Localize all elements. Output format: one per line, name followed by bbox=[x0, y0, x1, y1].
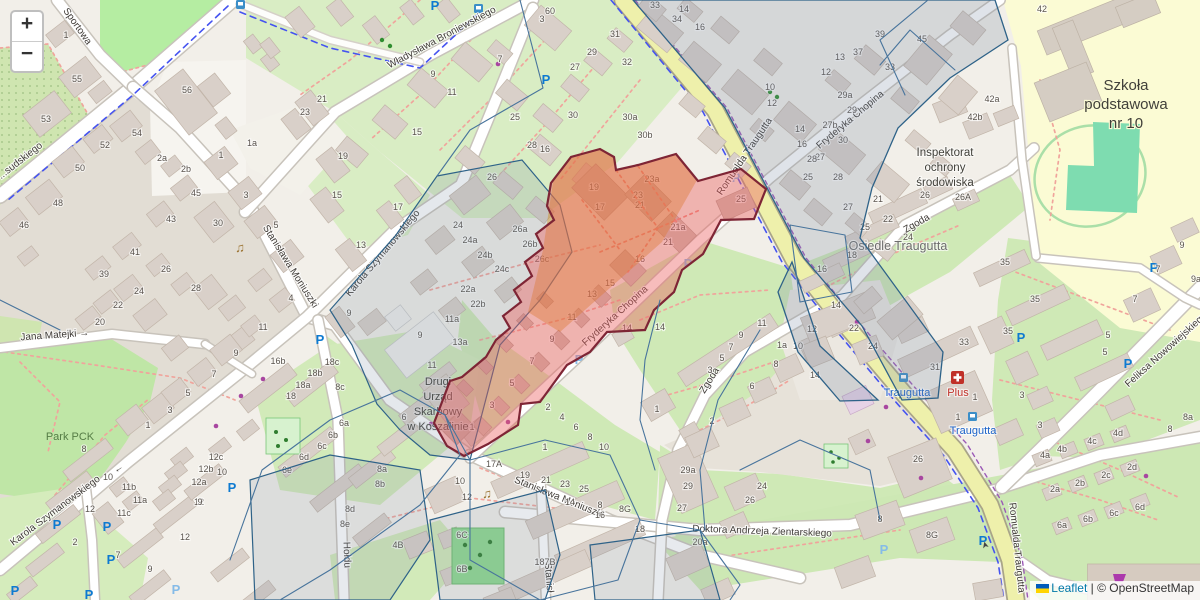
svg-text:11: 11 bbox=[258, 322, 267, 332]
svg-text:6: 6 bbox=[749, 381, 754, 391]
svg-text:P: P bbox=[172, 582, 181, 597]
svg-text:29: 29 bbox=[683, 481, 693, 491]
svg-text:10: 10 bbox=[455, 476, 465, 486]
svg-text:7: 7 bbox=[211, 369, 216, 379]
svg-text:11b: 11b bbox=[122, 482, 136, 492]
svg-text:1: 1 bbox=[972, 392, 977, 402]
svg-text:30b: 30b bbox=[637, 130, 652, 140]
svg-text:8: 8 bbox=[773, 359, 778, 369]
svg-text:Plus: Plus bbox=[947, 387, 969, 399]
svg-text:8c: 8c bbox=[335, 382, 345, 392]
svg-text:48: 48 bbox=[53, 198, 63, 208]
svg-text:35: 35 bbox=[1030, 294, 1040, 304]
svg-text:19: 19 bbox=[338, 151, 348, 161]
svg-text:P: P bbox=[1124, 356, 1133, 371]
svg-text:P: P bbox=[53, 517, 62, 532]
svg-text:4d: 4d bbox=[1113, 428, 1123, 438]
svg-text:ochrony: ochrony bbox=[925, 162, 966, 174]
svg-text:6: 6 bbox=[573, 422, 578, 432]
svg-text:18c: 18c bbox=[325, 357, 340, 367]
svg-text:16: 16 bbox=[595, 510, 605, 520]
svg-text:Traugutta: Traugutta bbox=[950, 425, 998, 437]
svg-text:13: 13 bbox=[356, 240, 366, 250]
svg-text:35: 35 bbox=[1000, 257, 1010, 267]
svg-text:18b: 18b bbox=[307, 368, 322, 378]
svg-text:Szkoła: Szkoła bbox=[1103, 77, 1149, 94]
svg-text:29: 29 bbox=[587, 47, 597, 57]
svg-text:1a: 1a bbox=[247, 138, 257, 148]
svg-text:42b: 42b bbox=[967, 112, 982, 122]
svg-text:4a: 4a bbox=[1040, 450, 1050, 460]
svg-text:10: 10 bbox=[103, 472, 113, 482]
svg-text:6c: 6c bbox=[317, 441, 327, 451]
svg-text:17: 17 bbox=[393, 202, 403, 212]
svg-text:43: 43 bbox=[166, 214, 176, 224]
svg-text:19: 19 bbox=[520, 470, 530, 480]
svg-text:22: 22 bbox=[113, 300, 123, 310]
svg-text:Inspektorat: Inspektorat bbox=[917, 147, 975, 159]
svg-text:54: 54 bbox=[132, 128, 142, 138]
svg-text:23: 23 bbox=[560, 479, 570, 489]
svg-text:5: 5 bbox=[273, 220, 278, 230]
svg-text:29a: 29a bbox=[680, 465, 695, 475]
svg-text:1: 1 bbox=[63, 30, 68, 40]
svg-text:30a: 30a bbox=[622, 112, 637, 122]
svg-text:11: 11 bbox=[757, 318, 766, 328]
svg-text:6a: 6a bbox=[1057, 520, 1067, 530]
svg-text:3: 3 bbox=[707, 365, 712, 375]
svg-text:1: 1 bbox=[542, 442, 547, 452]
svg-text:7: 7 bbox=[1155, 264, 1160, 274]
svg-text:12: 12 bbox=[85, 504, 95, 514]
svg-text:11a: 11a bbox=[133, 495, 147, 505]
svg-text:11: 11 bbox=[447, 87, 456, 97]
svg-text:18a: 18a bbox=[295, 380, 310, 390]
svg-text:45: 45 bbox=[191, 188, 201, 198]
svg-text:6c: 6c bbox=[1109, 508, 1119, 518]
svg-text:42a: 42a bbox=[984, 94, 999, 104]
svg-text:♫: ♫ bbox=[235, 240, 245, 255]
svg-text:♫: ♫ bbox=[482, 486, 492, 501]
svg-text:14: 14 bbox=[655, 322, 665, 332]
svg-text:2: 2 bbox=[545, 402, 550, 412]
svg-text:10: 10 bbox=[599, 442, 609, 452]
svg-text:12: 12 bbox=[180, 532, 190, 542]
svg-text:52: 52 bbox=[100, 140, 110, 150]
svg-text:6b: 6b bbox=[1083, 514, 1093, 524]
svg-text:30: 30 bbox=[213, 218, 223, 228]
svg-text:Park PCK: Park PCK bbox=[46, 431, 95, 443]
svg-text:2b: 2b bbox=[1075, 478, 1085, 488]
svg-text:P: P bbox=[11, 583, 20, 598]
svg-text:9a: 9a bbox=[1191, 274, 1200, 284]
svg-text:21: 21 bbox=[541, 475, 551, 485]
svg-text:14: 14 bbox=[831, 300, 841, 310]
svg-text:9: 9 bbox=[233, 348, 238, 358]
svg-text:2: 2 bbox=[72, 537, 77, 547]
svg-text:6d: 6d bbox=[299, 452, 309, 462]
svg-text:P: P bbox=[1017, 330, 1026, 345]
svg-text:22: 22 bbox=[883, 214, 893, 224]
svg-text:6a: 6a bbox=[339, 418, 349, 428]
svg-text:podstawowa: podstawowa bbox=[1084, 96, 1168, 113]
svg-text:24: 24 bbox=[757, 481, 767, 491]
svg-text:2c: 2c bbox=[1101, 470, 1111, 480]
svg-text:46: 46 bbox=[19, 220, 29, 230]
svg-text:6d: 6d bbox=[1135, 502, 1145, 512]
svg-text:53: 53 bbox=[41, 114, 51, 124]
svg-text:3: 3 bbox=[1037, 420, 1042, 430]
svg-text:P: P bbox=[316, 332, 325, 347]
svg-text:2a: 2a bbox=[1050, 484, 1060, 494]
svg-text:5: 5 bbox=[1105, 330, 1110, 340]
svg-text:26: 26 bbox=[920, 190, 930, 200]
svg-text:8: 8 bbox=[81, 444, 86, 454]
svg-text:20: 20 bbox=[95, 317, 105, 327]
svg-text:P: P bbox=[103, 519, 112, 534]
svg-text:26: 26 bbox=[745, 495, 755, 505]
svg-text:27: 27 bbox=[677, 503, 687, 513]
svg-text:15: 15 bbox=[412, 127, 422, 137]
svg-text:50: 50 bbox=[75, 163, 85, 173]
svg-text:12a: 12a bbox=[191, 477, 206, 487]
svg-text:27: 27 bbox=[570, 62, 580, 72]
svg-text:10: 10 bbox=[217, 467, 227, 477]
svg-text:35: 35 bbox=[1003, 326, 1013, 336]
svg-text:21: 21 bbox=[873, 194, 883, 204]
svg-text:8G: 8G bbox=[619, 504, 631, 514]
svg-text:9: 9 bbox=[147, 564, 152, 574]
svg-text:25: 25 bbox=[579, 484, 589, 494]
svg-text:P: P bbox=[542, 72, 551, 87]
svg-text:14: 14 bbox=[565, 497, 575, 507]
svg-text:33: 33 bbox=[959, 337, 969, 347]
svg-text:3: 3 bbox=[243, 190, 248, 200]
svg-text:7: 7 bbox=[497, 54, 502, 64]
svg-text:3: 3 bbox=[539, 14, 544, 24]
svg-text:2a: 2a bbox=[157, 153, 167, 163]
svg-text:9: 9 bbox=[738, 330, 743, 340]
svg-text:15: 15 bbox=[332, 190, 342, 200]
svg-text:5: 5 bbox=[719, 353, 724, 363]
svg-text:1: 1 bbox=[145, 420, 150, 430]
svg-text:P: P bbox=[880, 542, 889, 557]
svg-text:12c: 12c bbox=[209, 452, 224, 462]
svg-text:1: 1 bbox=[218, 150, 223, 160]
svg-text:22: 22 bbox=[849, 323, 859, 333]
svg-text:1a: 1a bbox=[777, 340, 787, 350]
svg-text:P: P bbox=[431, 0, 440, 13]
svg-text:60: 60 bbox=[545, 6, 555, 16]
svg-text:8G: 8G bbox=[926, 530, 938, 540]
svg-text:4b: 4b bbox=[1057, 444, 1067, 454]
svg-text:nr 10: nr 10 bbox=[1109, 115, 1143, 132]
svg-text:32: 32 bbox=[622, 57, 632, 67]
svg-text:9: 9 bbox=[1179, 240, 1184, 250]
svg-text:18: 18 bbox=[286, 391, 296, 401]
svg-text:5: 5 bbox=[185, 388, 190, 398]
svg-text:1: 1 bbox=[654, 404, 659, 414]
svg-text:26: 26 bbox=[161, 264, 171, 274]
svg-text:55: 55 bbox=[72, 74, 82, 84]
svg-text:41: 41 bbox=[130, 247, 140, 257]
svg-text:1: 1 bbox=[955, 412, 960, 422]
svg-text:16: 16 bbox=[540, 144, 550, 154]
svg-text:11c: 11c bbox=[117, 508, 131, 518]
svg-text:4: 4 bbox=[559, 412, 564, 422]
svg-text:6b: 6b bbox=[328, 430, 338, 440]
svg-text:P: P bbox=[979, 533, 988, 548]
svg-text:P: P bbox=[228, 480, 237, 495]
svg-text:25: 25 bbox=[510, 112, 520, 122]
svg-text:16b: 16b bbox=[270, 356, 285, 366]
svg-text:30: 30 bbox=[568, 110, 578, 120]
svg-text:23: 23 bbox=[300, 107, 310, 117]
svg-text:7: 7 bbox=[728, 342, 733, 352]
svg-text:2d: 2d bbox=[1127, 462, 1137, 472]
svg-text:8a: 8a bbox=[1183, 412, 1193, 422]
svg-text:31: 31 bbox=[610, 29, 620, 39]
svg-text:24: 24 bbox=[903, 232, 913, 242]
svg-text:26: 26 bbox=[913, 454, 923, 464]
svg-text:28: 28 bbox=[527, 140, 537, 150]
svg-text:5: 5 bbox=[1102, 347, 1107, 357]
svg-text:3: 3 bbox=[1019, 390, 1024, 400]
svg-text:9: 9 bbox=[197, 497, 202, 507]
svg-text:42: 42 bbox=[1037, 4, 1047, 14]
svg-text:środowiska: środowiska bbox=[916, 177, 974, 189]
svg-text:12b: 12b bbox=[198, 464, 213, 474]
svg-text:4: 4 bbox=[288, 293, 293, 303]
svg-text:26A: 26A bbox=[955, 192, 971, 202]
svg-text:8: 8 bbox=[1167, 424, 1172, 434]
svg-text:21: 21 bbox=[317, 94, 327, 104]
svg-text:17A: 17A bbox=[486, 459, 502, 469]
svg-text:P: P bbox=[107, 552, 116, 567]
svg-text:2b: 2b bbox=[181, 164, 191, 174]
svg-text:4c: 4c bbox=[1087, 436, 1097, 446]
svg-text:9: 9 bbox=[430, 69, 435, 79]
svg-text:8: 8 bbox=[597, 500, 602, 510]
svg-text:7: 7 bbox=[1132, 294, 1137, 304]
svg-text:8: 8 bbox=[587, 432, 592, 442]
svg-text:39: 39 bbox=[99, 269, 109, 279]
svg-text:3: 3 bbox=[167, 405, 172, 415]
svg-text:7: 7 bbox=[115, 550, 120, 560]
svg-text:24: 24 bbox=[134, 286, 144, 296]
svg-text:56: 56 bbox=[182, 85, 192, 95]
svg-text:P: P bbox=[85, 587, 94, 600]
svg-text:28: 28 bbox=[191, 283, 201, 293]
